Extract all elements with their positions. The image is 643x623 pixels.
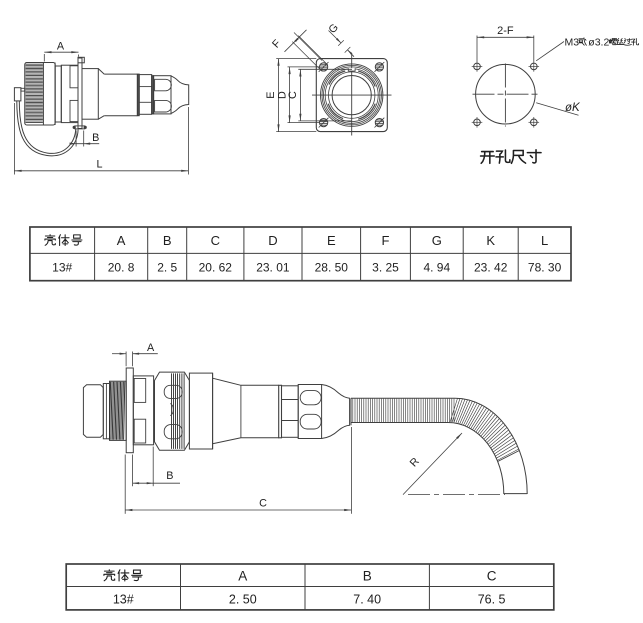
svg-text:D: D [268,233,277,248]
svg-text:A: A [238,568,247,583]
svg-text:G: G [432,233,442,248]
svg-text:L: L [541,233,548,248]
svg-text:R: R [408,455,422,469]
svg-text:2-F: 2-F [497,25,514,37]
svg-text:4. 94: 4. 94 [423,261,450,275]
svg-text:C: C [487,568,497,583]
svg-text:C: C [259,498,267,510]
svg-text:E: E [265,91,277,98]
svg-text:A: A [147,342,155,354]
svg-text:F: F [382,233,390,248]
svg-text:K: K [486,233,495,248]
svg-text:A: A [57,40,65,52]
svg-text:3. 25: 3. 25 [372,261,399,275]
svg-text:B: B [163,233,172,248]
svg-text:ø3.2: ø3.2 [588,37,609,49]
svg-text:B: B [363,568,372,583]
svg-text:28. 50: 28. 50 [315,261,349,275]
svg-text:øK: øK [565,102,581,114]
svg-text:M3: M3 [565,37,580,49]
svg-text:A: A [117,233,126,248]
svg-text:20. 62: 20. 62 [199,261,233,275]
svg-text:E: E [327,233,336,248]
svg-text:2. 5: 2. 5 [157,261,177,275]
svg-text:20. 8: 20. 8 [108,261,135,275]
svg-text:C: C [211,233,220,248]
svg-text:F: F [270,37,284,50]
svg-text:23. 42: 23. 42 [474,261,508,275]
svg-text:G: G [326,22,341,36]
svg-text:B: B [92,132,99,144]
svg-text:13#: 13# [52,261,72,275]
svg-text:76. 5: 76. 5 [478,593,506,607]
svg-text:B: B [166,470,173,482]
svg-text:23. 01: 23. 01 [256,261,290,275]
svg-text:78. 30: 78. 30 [528,261,562,275]
svg-text:2. 50: 2. 50 [229,593,257,607]
svg-text:C: C [287,91,299,99]
svg-text:7. 40: 7. 40 [353,593,381,607]
svg-text:13#: 13# [113,593,134,607]
svg-text:L: L [96,159,102,171]
